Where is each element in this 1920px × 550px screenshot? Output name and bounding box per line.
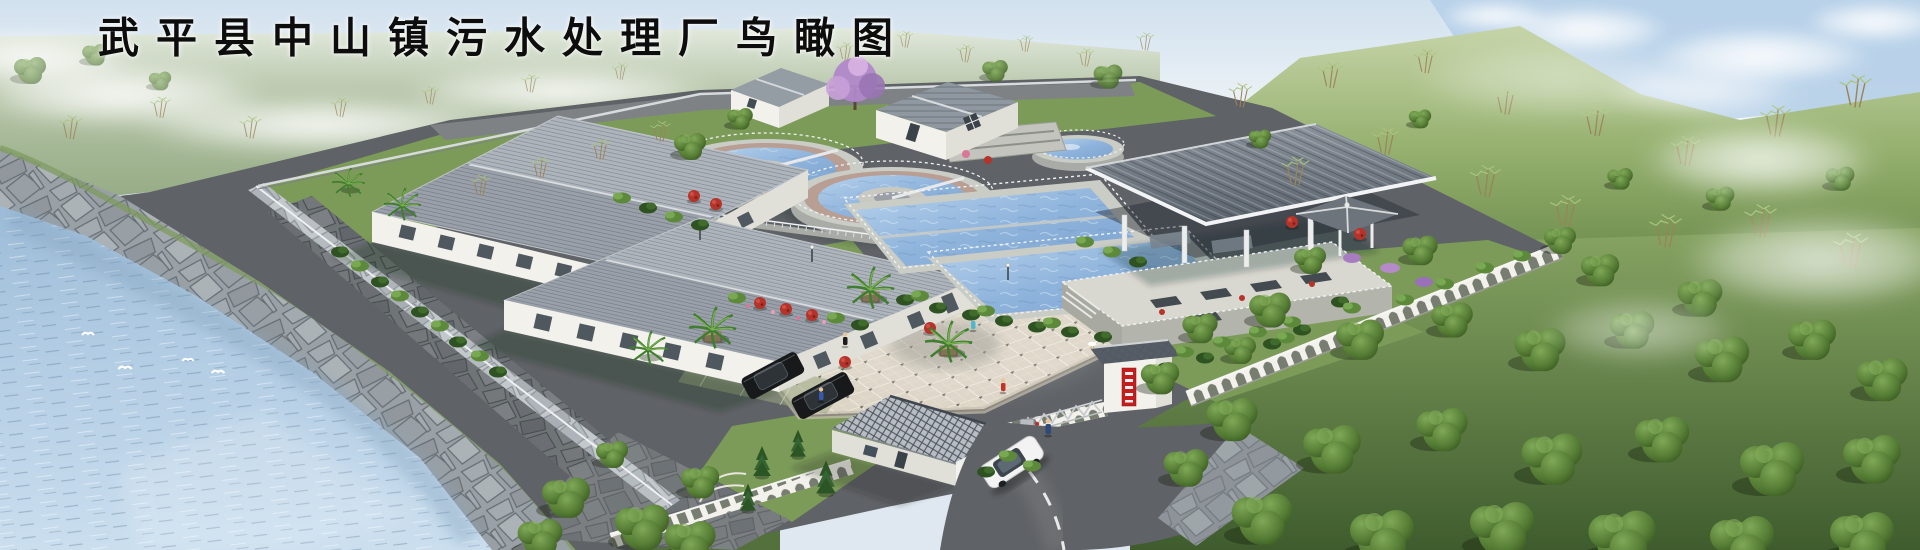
bush [1023,461,1041,472]
aerial-rendering-stage: 武平县中山镇污水处理厂鸟瞰图 [0,0,1920,550]
bush [1476,263,1494,274]
bush [1513,251,1531,262]
bush [1283,317,1301,328]
aerial-rendering [0,0,1920,550]
bush [1196,353,1214,364]
flowers [984,156,992,164]
page-title: 武平县中山镇污水处理厂鸟瞰图 [98,3,910,64]
bush [999,451,1017,462]
bush [1213,337,1231,348]
bush [1436,279,1454,290]
bush [1076,237,1094,248]
mist [1540,296,1740,364]
finial [1345,203,1350,208]
bush [977,467,995,478]
purple-shrub [1343,253,1361,263]
bush [1103,247,1121,258]
purple-shrub [1380,263,1400,273]
bush [1343,303,1361,314]
bush [1263,339,1281,350]
bush [639,203,657,214]
bush [1176,347,1194,358]
bush [1249,327,1267,338]
bush [1396,295,1414,306]
purple-shrub [1415,277,1433,287]
mist [1410,40,1710,120]
bush [665,212,683,223]
mist [1640,122,1880,198]
bush [691,220,709,231]
flowers [962,150,970,158]
bush [1129,257,1147,268]
bush [613,193,631,204]
